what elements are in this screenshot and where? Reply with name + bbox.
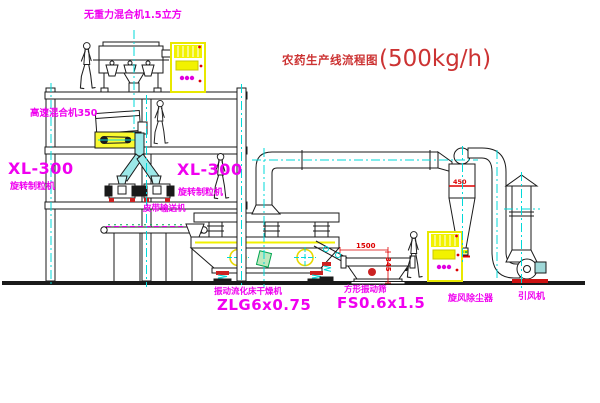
dimension-screen-height: 345 (384, 257, 391, 272)
dimension-cyclone: 450 (453, 179, 467, 186)
fan-and-stack (468, 148, 548, 283)
building-column-right (237, 88, 246, 281)
label-dryer-model: ZLG6x0.75 (217, 298, 311, 313)
cad-flow-diagram: 无重力混合机1.5立方 农药生产线流程图 (500kg/h) 高速混合机350 … (0, 0, 600, 403)
label-granulator-left-name: 旋转制粒机 (10, 183, 55, 192)
label-fan: 引风机 (518, 293, 545, 302)
label-cyclone: 旋风除尘器 (448, 295, 493, 304)
label-gravity-free-mixer: 无重力混合机1.5立方 (84, 11, 182, 21)
label-granulator-right-name: 旋转制粒机 (178, 189, 223, 198)
label-high-speed-mixer: 高速混合机350 (30, 109, 97, 119)
dimension-screen-length: 1500 (356, 243, 375, 250)
title-capacity: (500kg/h) (379, 46, 491, 72)
control-cabinet-top (171, 43, 205, 92)
label-screen-model: FS0.6x1.5 (337, 296, 425, 311)
label-granulator-left-model: XL-300 (8, 161, 74, 177)
person-figure-top-floor (80, 43, 95, 89)
control-cabinet-bottom (428, 232, 462, 281)
label-granulator-right-model: XL-300 (177, 162, 243, 178)
granulator-left (105, 176, 139, 202)
person-figure-second-floor (154, 100, 168, 143)
ground-line (2, 281, 585, 285)
diagram-title: 农药生产线流程图 (500kg/h) (282, 46, 491, 72)
person-figure-ground (407, 232, 422, 278)
label-belt-conveyor: 皮带输送机 (143, 205, 186, 214)
title-text: 农药生产线流程图 (282, 52, 378, 68)
